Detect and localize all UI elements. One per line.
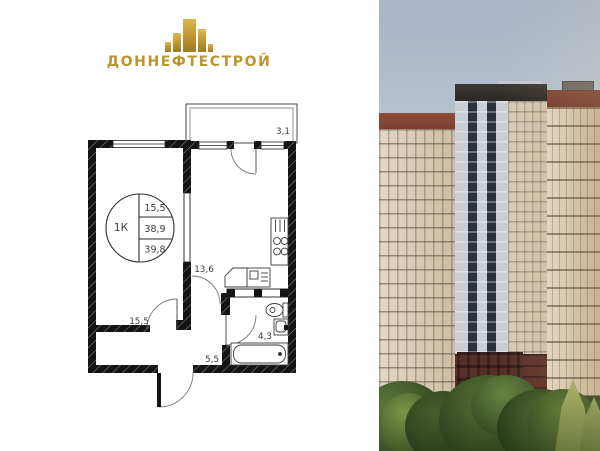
unit-living-area: 15,5 [144,203,165,214]
balcony-outline [186,104,297,143]
light-overlay [379,0,600,451]
label-kitchen-area: 13,6 [194,265,214,275]
label-balcony-area: 3,1 [276,127,290,137]
kitchen-fixtures [225,218,288,287]
label-bathroom-area: 4,3 [258,332,272,342]
unit-area-no-balcony: 38,9 [144,224,165,235]
screenshot-root: ДОННЕФТЕСТРОЙ [0,0,600,451]
entrance-door-leaf [157,373,161,407]
partition-wall [184,193,190,262]
label-bedroom-area: 15,5 [129,317,149,327]
unit-total-area: 39,8 [144,245,165,256]
duct-strip [227,289,288,297]
unit-rooms-label: 1К [114,222,129,234]
building-photo [379,0,600,451]
label-hallway-area: 5,5 [205,355,219,365]
floor-plan: 1К 15,5 38,9 39,8 3,1 13,6 15,5 5,5 4,3 [0,0,378,451]
